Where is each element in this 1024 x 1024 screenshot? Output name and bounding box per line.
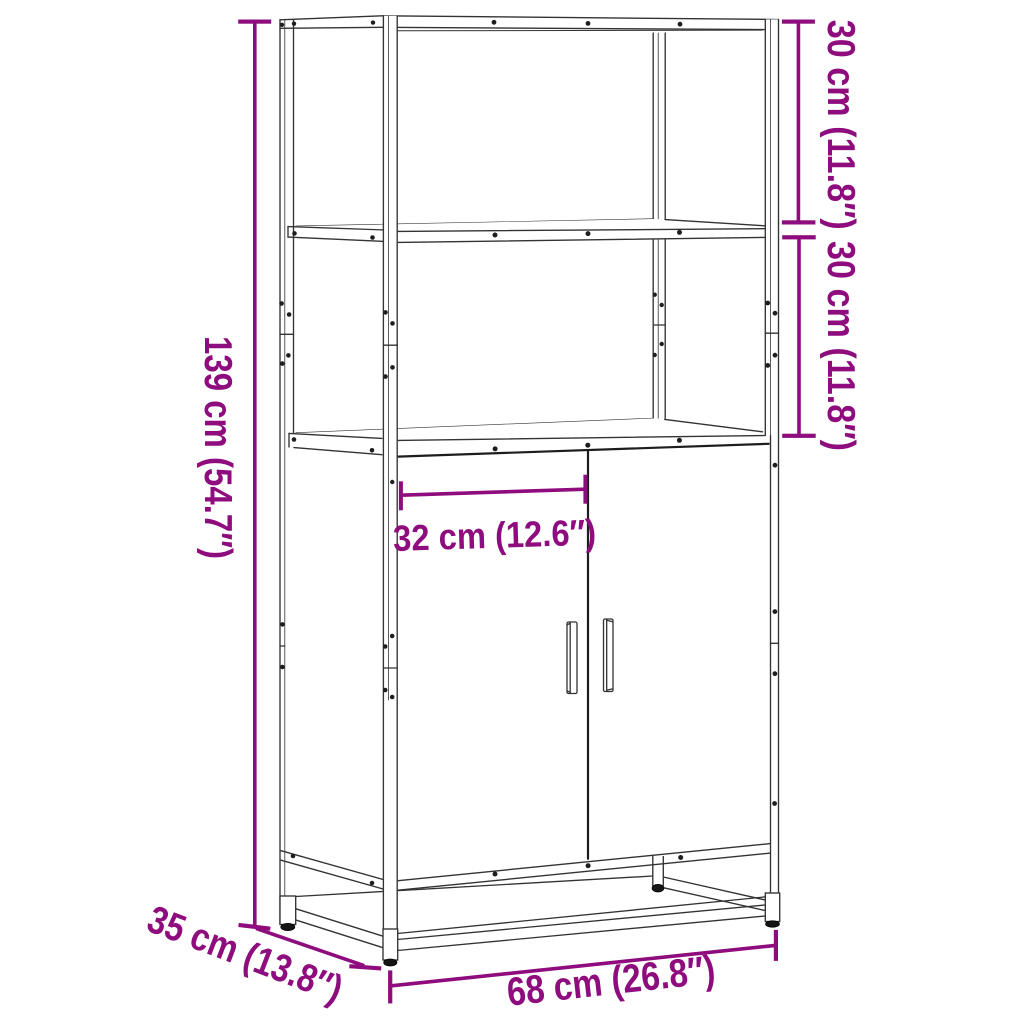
svg-text:30 cm (11.8″): 30 cm (11.8″) [819,20,862,230]
svg-text:139 cm (54.7″): 139 cm (54.7″) [196,336,239,559]
svg-text:30 cm (11.8″): 30 cm (11.8″) [819,241,862,451]
svg-text:32 cm (12.6″): 32 cm (12.6″) [393,512,597,559]
